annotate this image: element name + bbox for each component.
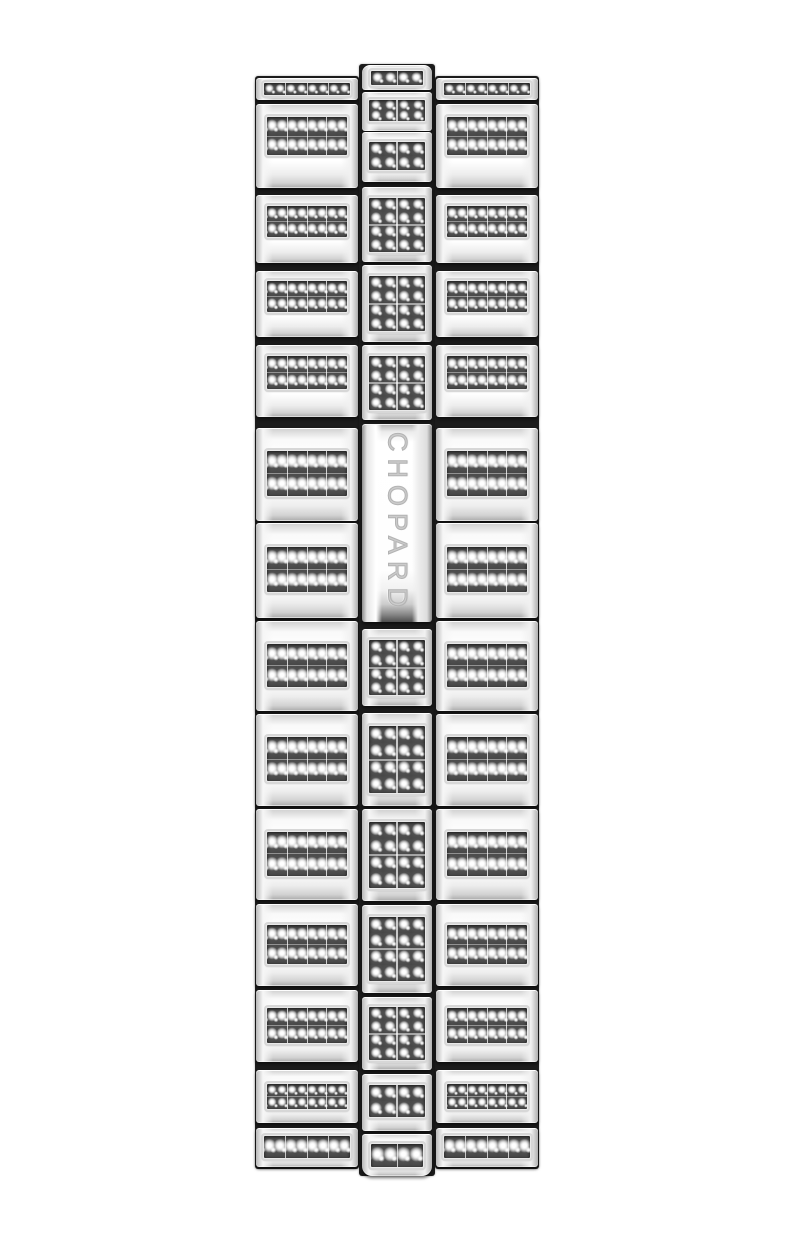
bracelet-link — [256, 345, 358, 417]
bracelet-link — [256, 714, 358, 806]
bracelet-link — [436, 428, 538, 521]
diamond-pave-panel — [446, 643, 528, 688]
diamond-pave-panel — [266, 450, 348, 497]
bracelet-link — [436, 195, 538, 263]
diamond-pave-panel — [368, 1006, 425, 1061]
bracelet-link — [436, 271, 538, 337]
diamond-pave-panel — [368, 725, 425, 794]
bracelet-link — [256, 809, 358, 900]
bracelet-link — [436, 1128, 538, 1167]
clasp-plate: CHOPARD — [362, 424, 432, 622]
brand-engraving: CHOPARD — [382, 432, 413, 614]
diamond-pave-panel — [266, 831, 348, 877]
bracelet-link — [362, 809, 432, 901]
diamond-pave-panel — [370, 1143, 425, 1168]
diamond-pave-panel — [368, 916, 425, 981]
diamond-pave-panel — [266, 1083, 348, 1110]
bracelet-link — [436, 104, 538, 188]
diamond-pave-panel — [266, 205, 348, 238]
diamond-pave-panel — [266, 736, 348, 782]
diamond-pave-panel — [266, 280, 348, 312]
bracelet-link — [256, 523, 358, 618]
bracelet-link — [256, 104, 358, 188]
diamond-pave-panel — [443, 82, 531, 97]
diamond-pave-panel — [368, 141, 425, 171]
diamond-pave-panel — [446, 1083, 528, 1110]
bracelet-link — [256, 621, 358, 711]
diamond-pave-panel — [266, 1007, 348, 1044]
diamond-pave-panel — [446, 924, 528, 965]
diamond-pave-panel — [266, 546, 348, 594]
diamond-pave-panel — [266, 355, 348, 390]
bracelet-link — [256, 990, 358, 1062]
diamond-pave-panel — [446, 355, 528, 390]
bracelet-link — [362, 65, 432, 90]
bracelet-link — [362, 713, 432, 806]
diamond-pave-panel — [370, 70, 425, 86]
diamond-pave-panel — [368, 355, 425, 411]
bracelet-link — [362, 1134, 432, 1176]
bracelet-link — [436, 78, 538, 100]
bracelet-column-center: CHOPARD — [359, 64, 435, 1176]
diamond-pave-panel — [266, 643, 348, 688]
bracelet-link — [256, 428, 358, 521]
bracelet-link — [256, 904, 358, 986]
diamond-pave-panel — [446, 736, 528, 782]
diamond-pave-panel — [446, 450, 528, 497]
bracelet-link — [362, 187, 432, 262]
bracelet-link — [362, 132, 432, 182]
diamond-pave-panel — [368, 1084, 425, 1118]
bracelet-link — [256, 271, 358, 337]
diamond-pave-panel — [446, 831, 528, 877]
bracelet-link — [362, 1074, 432, 1131]
diamond-pave-panel — [368, 197, 425, 253]
diamond-pave-panel — [446, 116, 528, 157]
bracelet-link — [362, 997, 432, 1070]
bracelet-link — [436, 345, 538, 417]
bracelet-link — [256, 1070, 358, 1123]
bracelet-link — [362, 265, 432, 342]
bracelet-link — [436, 1070, 538, 1123]
bracelet-link — [362, 92, 432, 131]
bracelet-link — [436, 809, 538, 900]
diamond-pave-panel — [446, 205, 528, 238]
diamond-pave-panel — [446, 1007, 528, 1044]
bracelet-link — [256, 195, 358, 263]
bracelet-link — [436, 523, 538, 618]
bracelet-link — [362, 345, 432, 420]
bracelet-link — [362, 905, 432, 993]
diamond-pave-panel — [263, 1135, 351, 1160]
diamond-pave-panel — [443, 1135, 531, 1160]
bracelet-column-right — [435, 76, 539, 1169]
bracelet-link — [256, 1128, 358, 1167]
bracelet-column-left — [255, 76, 359, 1169]
diamond-pave-panel — [446, 546, 528, 594]
diamond-pave-panel — [266, 924, 348, 965]
diamond-pave-panel — [266, 116, 348, 157]
diamond-pave-panel — [368, 821, 425, 889]
bracelet-link — [436, 714, 538, 806]
bracelet-link — [362, 629, 432, 706]
diamond-pave-panel — [263, 82, 351, 97]
bracelet-link — [436, 990, 538, 1062]
diamond-pave-panel — [368, 275, 425, 332]
bracelet-link — [256, 78, 358, 100]
bracelet-link — [436, 621, 538, 711]
diamond-pave-panel — [446, 280, 528, 312]
diamond-pave-panel — [368, 99, 425, 123]
bracelet-photo: CHOPARD — [255, 64, 539, 1176]
bracelet-link — [436, 904, 538, 986]
diamond-pave-panel — [368, 639, 425, 696]
